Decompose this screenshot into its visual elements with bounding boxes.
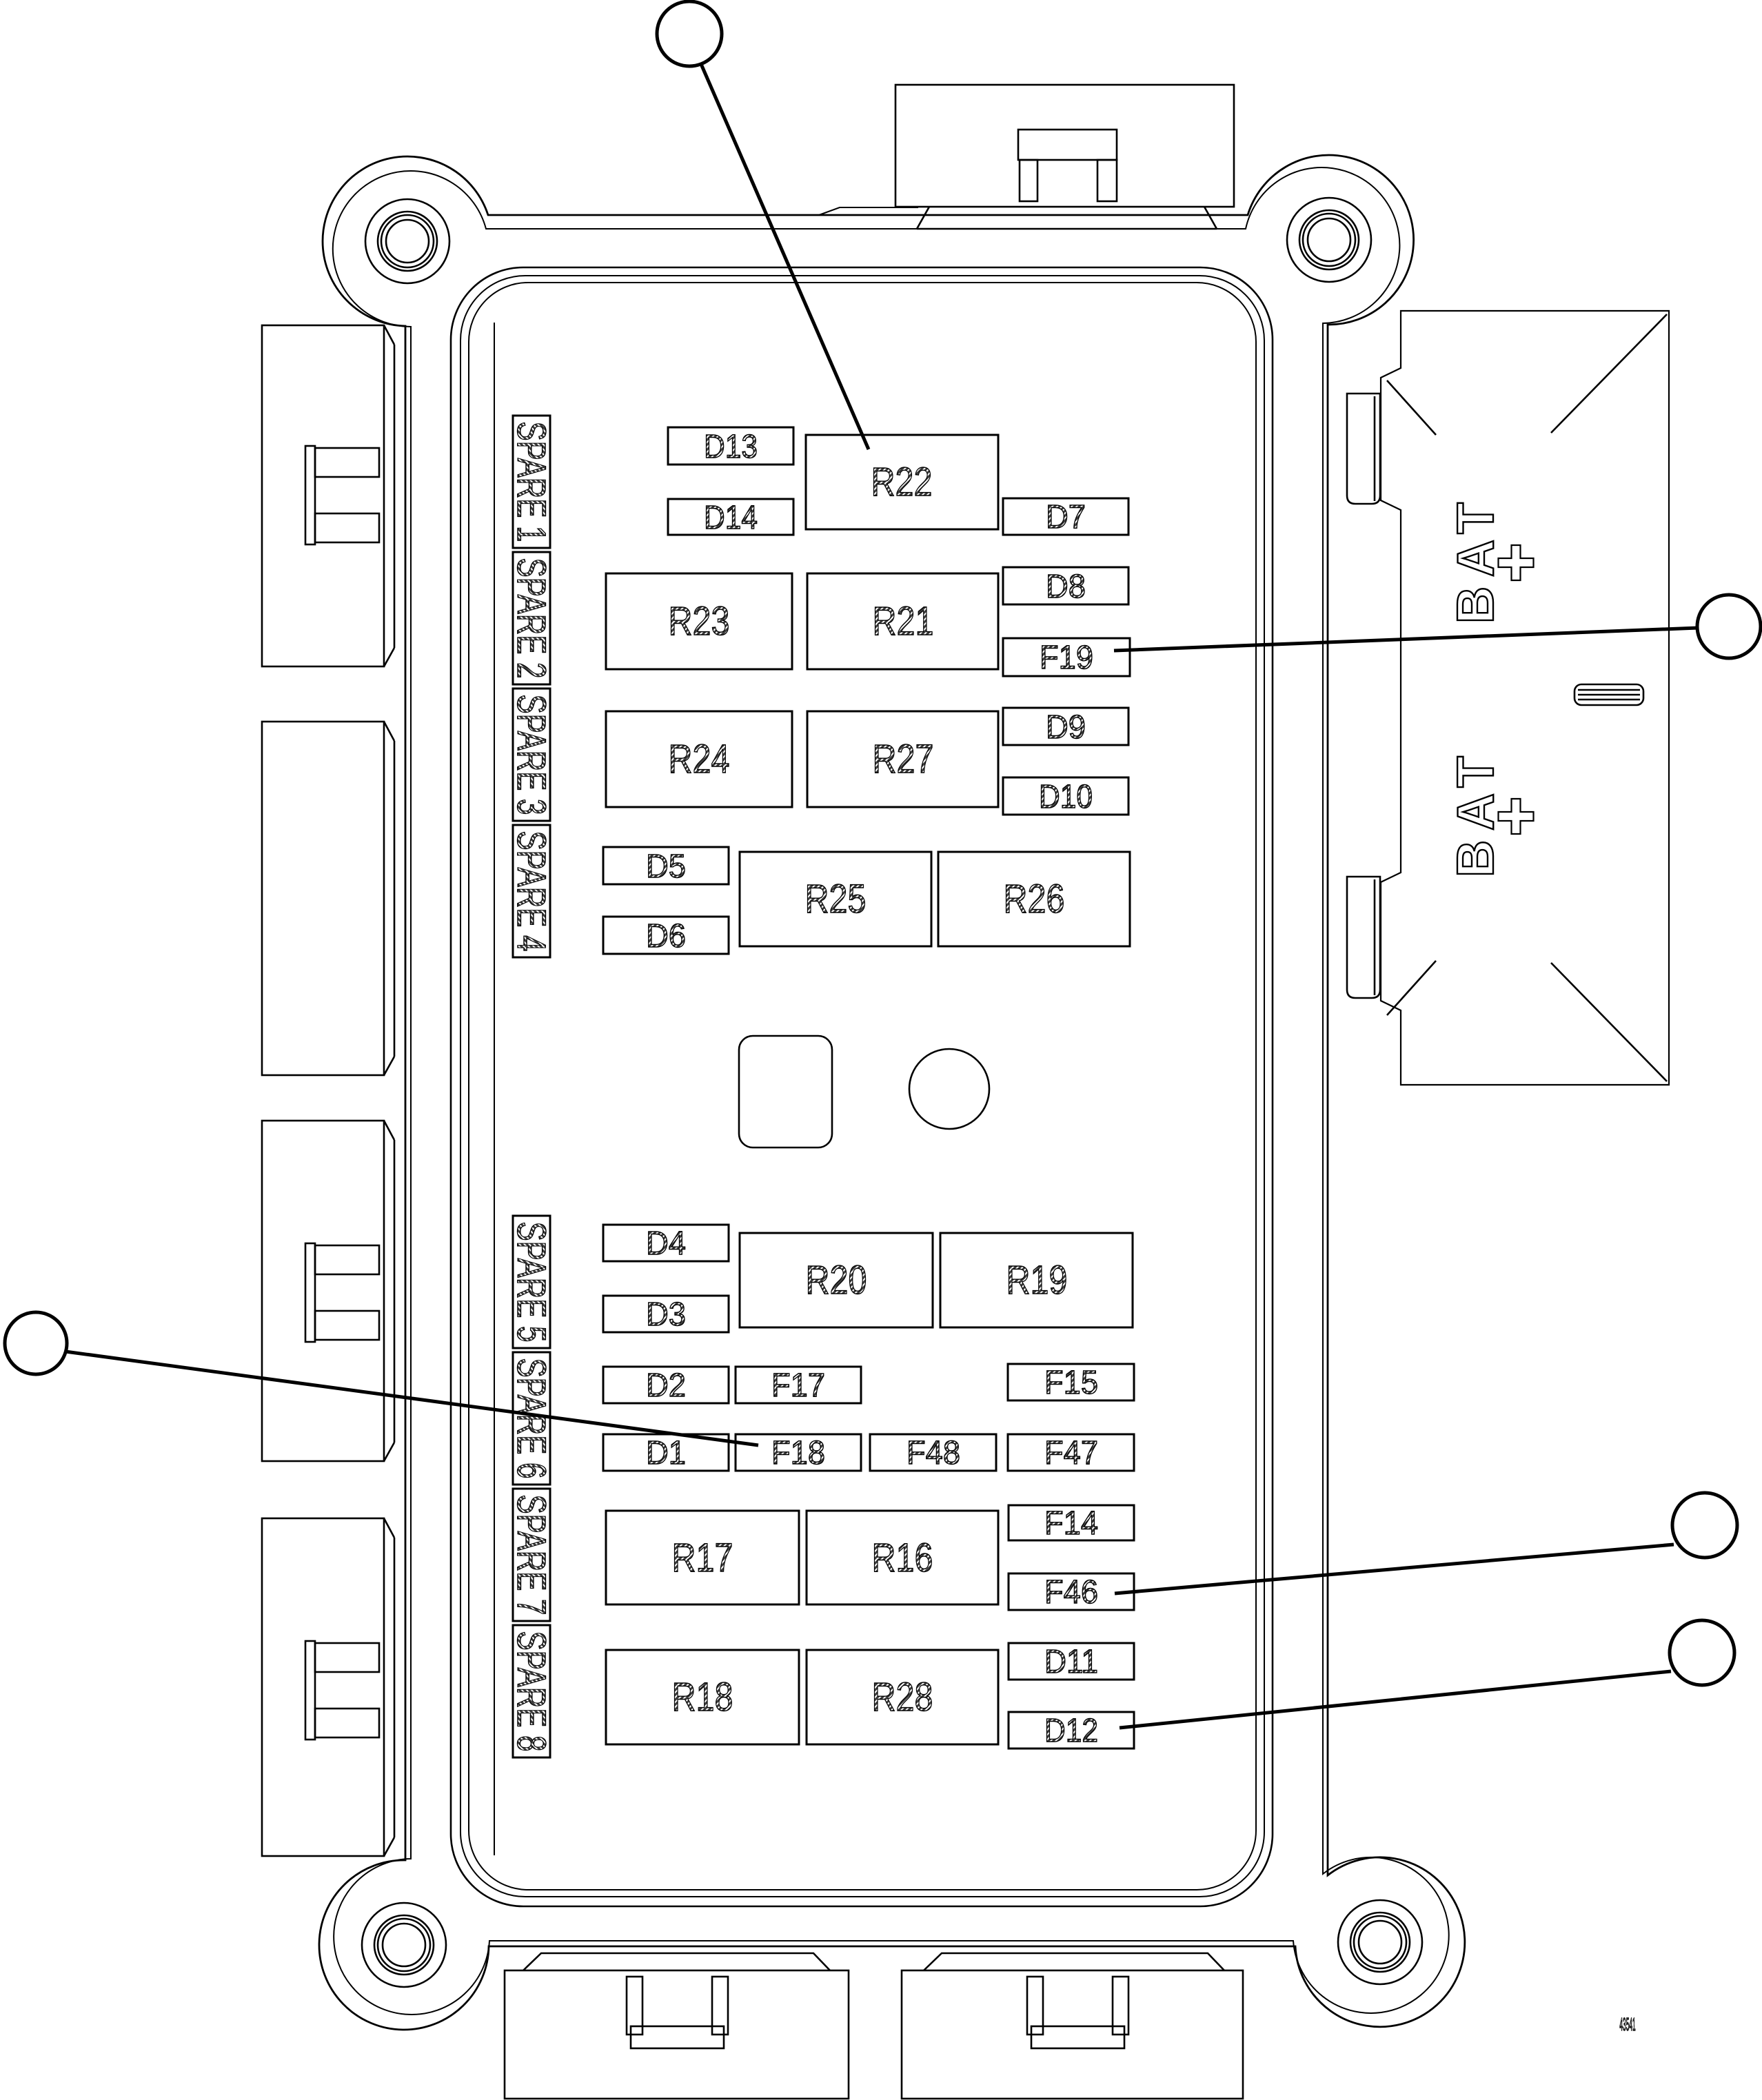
svg-text:D4: D4 xyxy=(646,1225,686,1262)
svg-text:F48: F48 xyxy=(907,1435,960,1471)
svg-text:SPARE 5: SPARE 5 xyxy=(509,1222,554,1343)
svg-text:SPARE 7: SPARE 7 xyxy=(509,1495,554,1615)
svg-text:R22: R22 xyxy=(871,460,933,504)
svg-text:43541: 43541 xyxy=(1619,2015,1635,2035)
svg-text:R17: R17 xyxy=(672,1536,733,1580)
svg-text:F46: F46 xyxy=(1044,1574,1098,1611)
svg-text:D6: D6 xyxy=(646,918,686,955)
svg-text:R21: R21 xyxy=(873,599,934,644)
svg-text:D11: D11 xyxy=(1044,1644,1098,1680)
svg-text:D7: D7 xyxy=(1046,499,1086,536)
svg-text:SPARE 4: SPARE 4 xyxy=(509,831,554,952)
svg-text:F18: F18 xyxy=(771,1435,825,1471)
svg-text:SPARE 2: SPARE 2 xyxy=(509,558,554,679)
svg-text:SPARE 8: SPARE 8 xyxy=(509,1631,554,1752)
svg-text:SPARE 3: SPARE 3 xyxy=(509,695,554,815)
svg-text:R26: R26 xyxy=(1004,877,1065,921)
svg-text:D8: D8 xyxy=(1046,569,1086,605)
svg-text:F19: F19 xyxy=(1040,640,1093,676)
svg-text:D12: D12 xyxy=(1044,1713,1098,1749)
svg-text:D9: D9 xyxy=(1046,709,1086,746)
svg-text:D1: D1 xyxy=(646,1435,686,1471)
svg-text:BAT: BAT xyxy=(1446,502,1504,624)
svg-text:R24: R24 xyxy=(669,737,730,782)
svg-text:SPARE 1: SPARE 1 xyxy=(509,422,554,542)
svg-text:F15: F15 xyxy=(1044,1365,1098,1401)
svg-text:D13: D13 xyxy=(704,429,758,465)
svg-text:R25: R25 xyxy=(805,877,867,921)
svg-text:R20: R20 xyxy=(806,1258,867,1303)
svg-text:D3: D3 xyxy=(646,1296,686,1333)
svg-text:F17: F17 xyxy=(771,1367,825,1404)
svg-text:D14: D14 xyxy=(704,500,758,536)
svg-text:R23: R23 xyxy=(669,599,730,644)
svg-text:R28: R28 xyxy=(872,1675,933,1720)
svg-text:D2: D2 xyxy=(646,1367,686,1404)
svg-text:R16: R16 xyxy=(872,1536,933,1580)
svg-text:D10: D10 xyxy=(1039,779,1093,815)
svg-text:R19: R19 xyxy=(1006,1258,1068,1303)
svg-text:R27: R27 xyxy=(873,737,934,782)
svg-text:F14: F14 xyxy=(1044,1505,1098,1542)
svg-text:R18: R18 xyxy=(672,1675,733,1720)
svg-text:BAT: BAT xyxy=(1446,756,1504,877)
svg-text:F47: F47 xyxy=(1044,1435,1098,1471)
svg-text:D5: D5 xyxy=(646,848,686,885)
